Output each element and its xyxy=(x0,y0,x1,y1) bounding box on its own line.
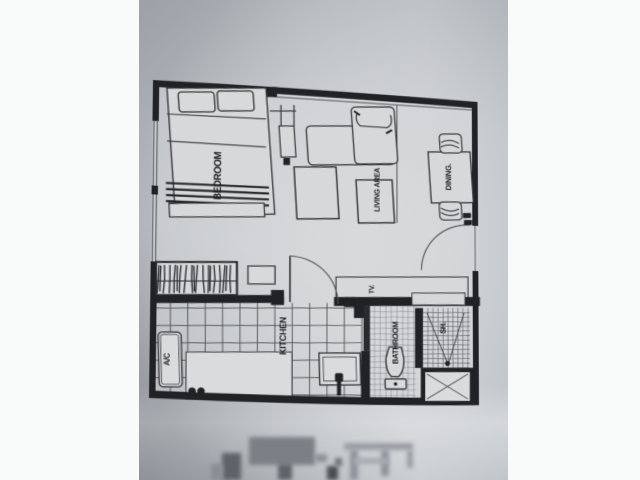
svg-text:TV.: TV. xyxy=(368,284,376,294)
svg-text:SH.: SH. xyxy=(439,322,448,334)
svg-text:KITCHEN: KITCHEN xyxy=(278,316,288,355)
svg-text:BATHROOM: BATHROOM xyxy=(391,321,400,364)
svg-text:A/C: A/C xyxy=(162,353,171,366)
svg-text:LIVING AREA: LIVING AREA xyxy=(373,167,382,212)
svg-text:BEDROOM: BEDROOM xyxy=(213,152,225,201)
svg-text:DINING.: DINING. xyxy=(444,163,453,190)
